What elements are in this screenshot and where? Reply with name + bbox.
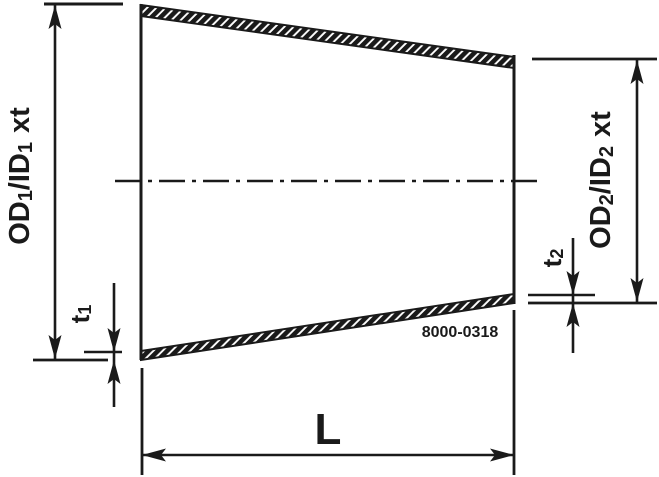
dimension-od1: OD1/ID1xt xyxy=(4,4,123,360)
length-label: L xyxy=(315,405,342,454)
reducer-drawing: OD1/ID1xt t1 OD2/ID2xt t2 L 8000-0318 xyxy=(0,0,659,477)
top-wall-hatched xyxy=(141,5,514,68)
t1-label: t1 xyxy=(65,305,95,324)
drawing-svg: OD1/ID1xt t1 OD2/ID2xt t2 L 8000-0318 xyxy=(0,0,659,477)
dimension-t1: t1 xyxy=(65,283,122,407)
part-number: 8000-0318 xyxy=(422,324,499,341)
od1-label: OD1/ID1xt xyxy=(4,107,37,245)
od2-label: OD2/ID2xt xyxy=(585,111,618,249)
dimension-t2: t2 xyxy=(528,238,595,353)
t2-label: t2 xyxy=(537,249,567,268)
